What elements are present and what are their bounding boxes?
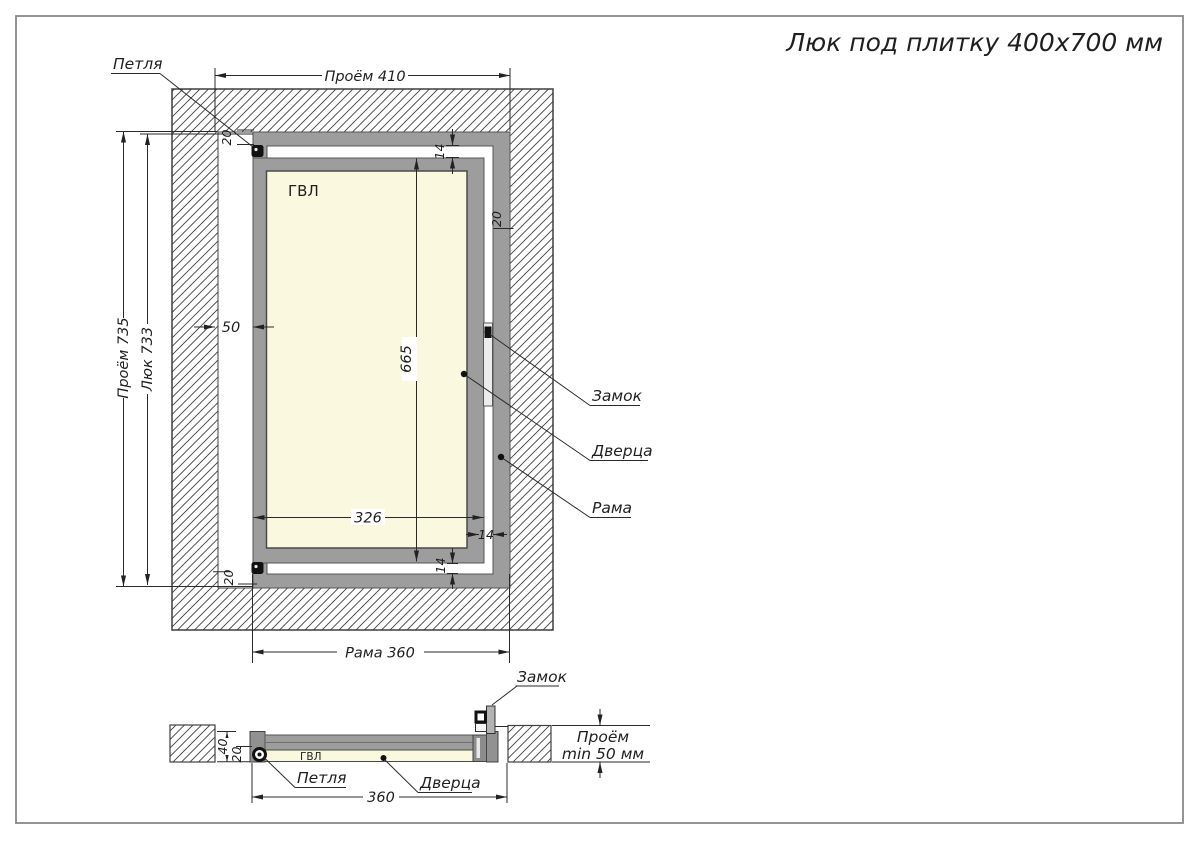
label-lock-section: Замок [517, 668, 568, 686]
leader-dot-frame [498, 454, 504, 460]
lock-bar-section [487, 706, 496, 734]
hinge-bottom-pin-icon [254, 565, 257, 568]
dim-frame-profile-right: 20 [489, 211, 504, 227]
dim-clearance-top: 14 [432, 144, 447, 160]
wall-hatch-section-right [508, 726, 551, 763]
dim-door-height: 665 [399, 345, 415, 373]
drawing-page: Люк под плитку 400x700 мм ГВЛ Проём 410 [0, 0, 1200, 848]
drawing-title: Люк под плитку 400x700 мм [785, 28, 1163, 57]
label-hinge: Петля [113, 55, 162, 73]
dim-opening-height: Проём 735 [116, 317, 132, 398]
dim-clearance-side: 14 [478, 527, 494, 542]
dim-opening-depth-line2: min 50 мм [562, 745, 644, 763]
dim-opening-width: Проём 410 [324, 69, 405, 85]
leader-dot-door [461, 371, 467, 377]
technical-drawing: Люк под плитку 400x700 мм ГВЛ Проём 410 [0, 0, 1200, 848]
frame-profile-right-section [487, 732, 499, 763]
wall-hatch-section-left [170, 725, 215, 762]
dim-clearance-bottom: 14 [433, 558, 448, 574]
lock-body-inner [478, 714, 485, 721]
gvl-panel [267, 171, 468, 548]
dim-frame-width: Рама 360 [345, 646, 415, 662]
door-end-slit [477, 738, 481, 758]
dim-frame-depth: 40 [215, 739, 230, 755]
plan-view: ГВЛ [172, 89, 553, 630]
label-frame: Рама [592, 499, 632, 517]
gvl-panel-section [265, 750, 473, 762]
dim-hatch-height: Люк 733 [140, 327, 156, 392]
hinge-top-icon [252, 145, 264, 157]
label-hinge-section: Петля [297, 769, 346, 787]
dim-hinge-gap: 50 [222, 320, 240, 336]
dim-opening-depth-line1: Проём [577, 728, 630, 746]
label-door-section: Дверца [419, 774, 481, 792]
dim-section-frame-width: 360 [367, 790, 395, 806]
hinge-bottom-icon [252, 562, 264, 574]
dim-panel-depth: 20 [229, 747, 244, 763]
leader-dot-lock [484, 329, 490, 335]
label-door: Дверца [591, 442, 653, 460]
hinge-section-pin [258, 753, 262, 757]
lock-base-section [476, 724, 487, 732]
dim-frame-profile-bottom: 20 [221, 570, 236, 586]
gvl-panel-label: ГВЛ [288, 182, 319, 200]
dim-door-width: 326 [354, 511, 382, 527]
dim-frame-profile-top: 20 [219, 130, 234, 146]
gvl-section-label: ГВЛ [300, 751, 322, 763]
label-lock: Замок [592, 387, 643, 405]
hinge-top-pin-icon [254, 148, 257, 151]
leader-dot-door-section [381, 755, 387, 761]
